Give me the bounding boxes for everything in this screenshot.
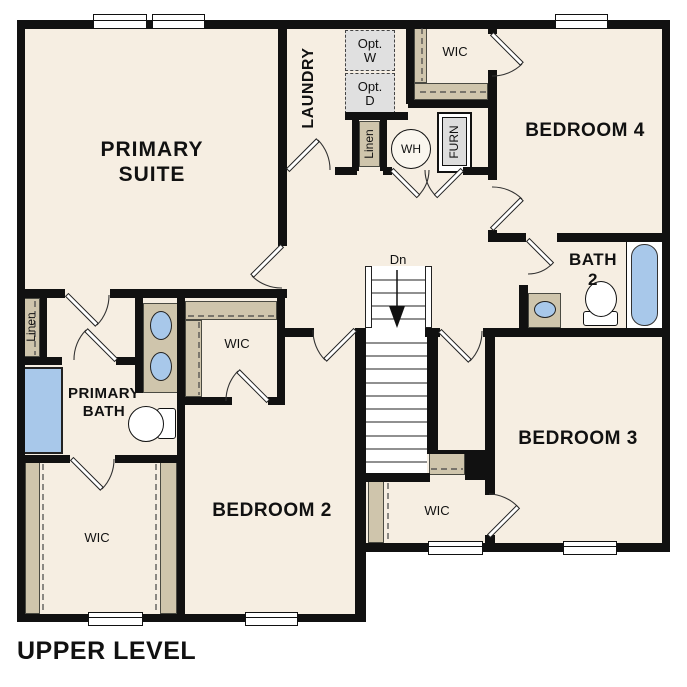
wall — [277, 293, 285, 405]
window — [428, 541, 483, 555]
opt-w-label2: W — [364, 50, 376, 65]
wall — [177, 298, 185, 614]
wall — [380, 113, 387, 171]
wall — [17, 455, 70, 463]
wic-bl-shelf-right — [160, 462, 177, 614]
wic-top-label: WIC — [433, 44, 477, 59]
stairs-lower-flight — [366, 328, 427, 473]
optional-dryer-box: Opt. D — [345, 73, 395, 114]
primary-suite-label: PRIMARY SUITE — [62, 137, 242, 187]
wall — [408, 100, 497, 108]
wall — [557, 233, 670, 242]
floor-lower-left — [17, 545, 366, 622]
opt-d-label1: Opt. — [358, 79, 383, 94]
wic-primary-label: WIC — [215, 336, 259, 351]
window — [93, 14, 147, 29]
window — [245, 612, 298, 626]
primary-sink-2 — [150, 352, 172, 381]
optional-washer-box: Opt. W — [345, 30, 395, 71]
wall — [485, 535, 495, 543]
wic-primary-shelf-left — [185, 320, 202, 397]
wall — [352, 113, 359, 171]
wall — [427, 337, 438, 453]
stairs-upper-flight — [372, 266, 425, 328]
page-title: UPPER LEVEL — [17, 637, 196, 666]
water-heater: WH — [391, 129, 431, 169]
wall — [40, 298, 47, 358]
primary-sink-1 — [150, 311, 172, 340]
wall — [285, 328, 314, 337]
wall — [662, 20, 670, 552]
window — [88, 612, 143, 626]
floor-plan: Opt. W Opt. D WH FURN — [0, 0, 687, 687]
wall — [355, 543, 670, 552]
furnace-label: FURN — [444, 117, 464, 167]
wall — [17, 614, 366, 622]
wic-top-shelf-bottom — [414, 83, 488, 100]
window — [555, 14, 608, 29]
wall — [519, 285, 528, 330]
stair-rail-right — [425, 266, 432, 328]
stairs-dn-label: Dn — [383, 252, 413, 267]
bedroom4-label: BEDROOM 4 — [495, 120, 675, 142]
opt-d-label2: D — [365, 93, 374, 108]
laundry-label: LAUNDRY — [299, 38, 319, 138]
wall — [425, 328, 440, 337]
wall — [268, 397, 285, 405]
wic-bc-shelf-left — [368, 480, 384, 543]
wall — [483, 328, 670, 337]
bedroom3-label: BEDROOM 3 — [488, 428, 668, 450]
wall — [17, 357, 62, 365]
wall — [497, 233, 526, 242]
wall — [185, 397, 232, 405]
wic-bl-shelf-left — [25, 462, 40, 614]
wic-bottom-center-label: WIC — [415, 503, 459, 518]
stair-rail-left — [365, 266, 372, 328]
linen-hall-label: Linen — [21, 302, 41, 352]
primary-bath-label: PRIMARY BATH — [48, 385, 160, 421]
bath2-sink — [534, 301, 556, 318]
wic-bottom-left-label: WIC — [75, 530, 119, 545]
wall — [488, 230, 497, 242]
bath2-label: BATH 2 — [558, 250, 628, 290]
chase-block — [465, 450, 495, 480]
wic-primary-shelf-top — [185, 301, 277, 320]
wall — [357, 473, 430, 482]
window — [152, 14, 205, 29]
wall — [135, 298, 143, 393]
bath2-tub — [631, 244, 658, 326]
wall — [115, 455, 177, 463]
linen-laundry-label: Linen — [359, 119, 379, 169]
window — [563, 541, 617, 555]
wall — [110, 289, 287, 298]
wall — [17, 289, 65, 298]
wall — [278, 20, 287, 246]
wall — [406, 20, 414, 104]
wall — [427, 450, 465, 454]
water-heater-label: WH — [401, 142, 421, 156]
wic-bc-shelf-top — [429, 453, 465, 475]
wall — [488, 20, 497, 34]
opt-w-label1: Opt. — [358, 36, 383, 51]
bedroom2-label: BEDROOM 2 — [182, 500, 362, 522]
wic-top-shelf-left — [414, 25, 427, 83]
